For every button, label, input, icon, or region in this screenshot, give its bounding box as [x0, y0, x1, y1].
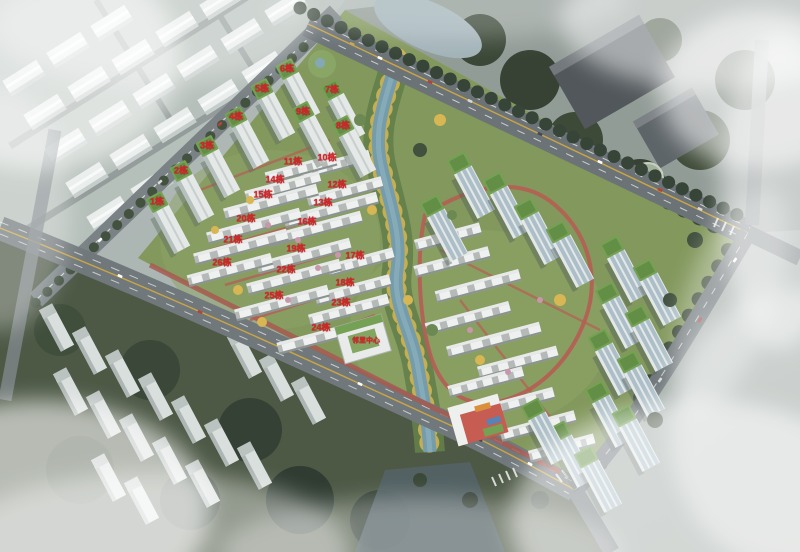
scene-canvas: [0, 0, 800, 552]
haze-overlay: [0, 0, 800, 552]
aerial-rendering: 1栋2栋3栋4栋5栋6栋7栋8栋9栋10栋11栋12栋13栋14栋15栋16栋1…: [0, 0, 800, 552]
